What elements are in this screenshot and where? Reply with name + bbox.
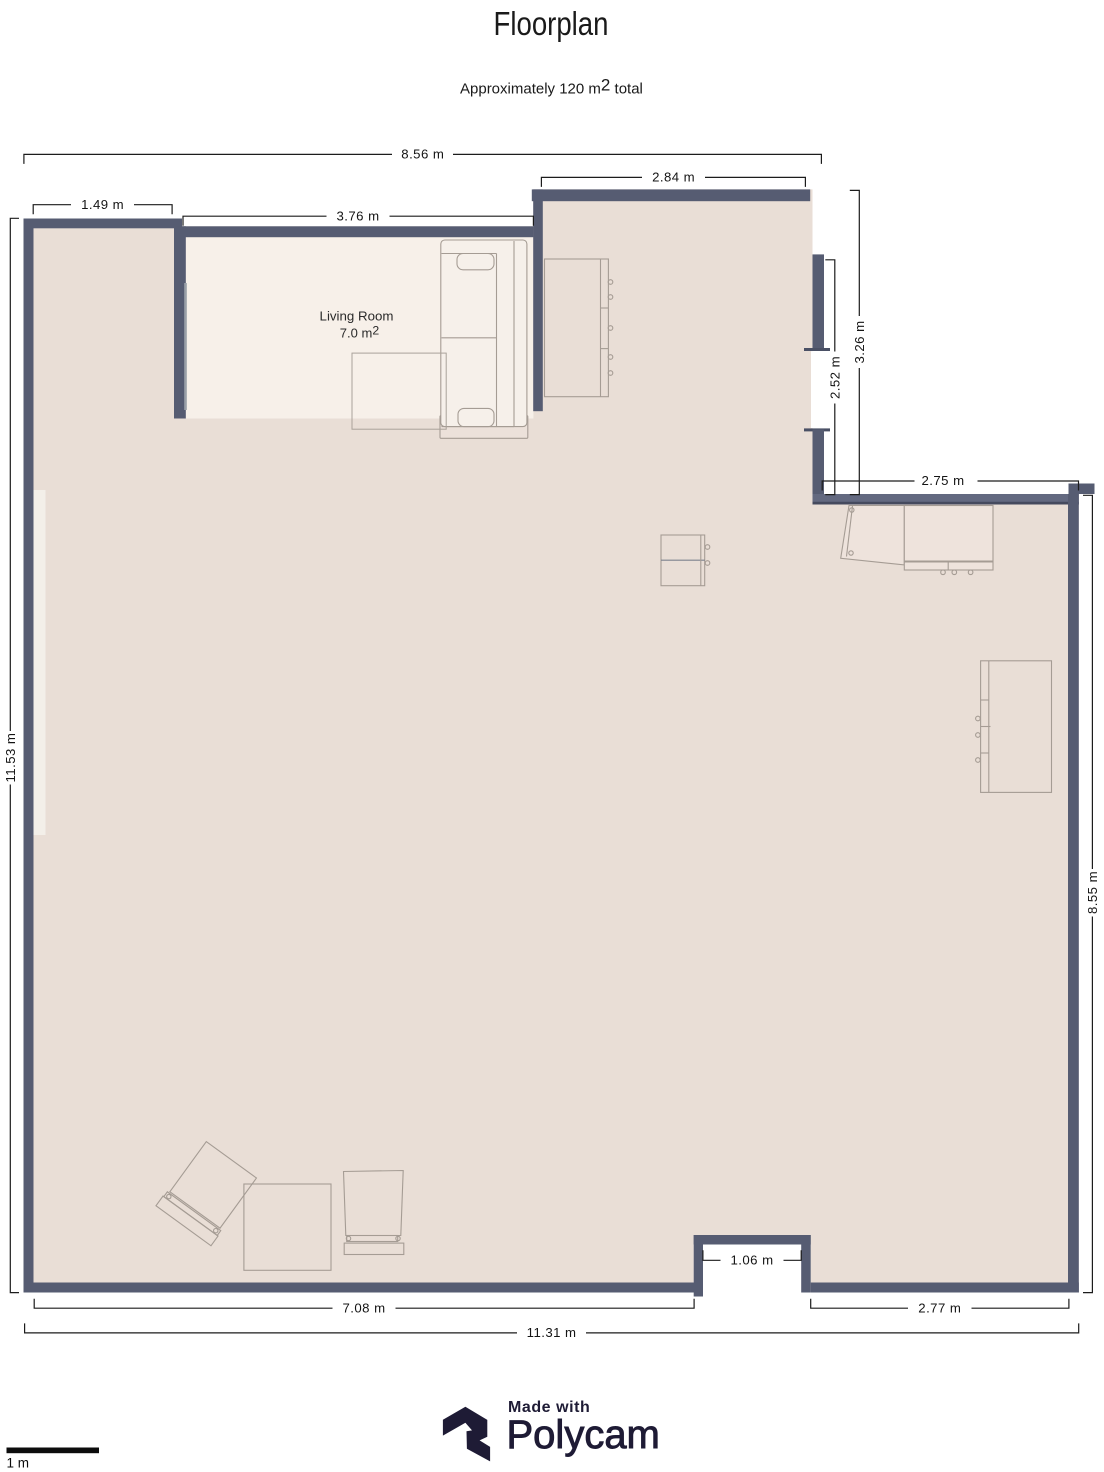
svg-text:2.84 m: 2.84 m	[652, 170, 695, 185]
svg-text:3.76 m: 3.76 m	[336, 208, 379, 223]
svg-text:Living Room: Living Room	[320, 308, 394, 323]
svg-text:11.31 m: 11.31 m	[527, 1325, 577, 1340]
svg-text:3.26 m: 3.26 m	[852, 320, 867, 363]
svg-text:Floorplan: Floorplan	[494, 6, 609, 43]
svg-text:8.55 m: 8.55 m	[1085, 871, 1100, 914]
svg-text:2.75 m: 2.75 m	[921, 473, 964, 488]
svg-text:11.53 m: 11.53 m	[3, 733, 18, 783]
svg-text:1 m: 1 m	[7, 1456, 30, 1471]
svg-text:1.06 m: 1.06 m	[730, 1253, 773, 1268]
svg-text:1.49 m: 1.49 m	[81, 197, 124, 212]
svg-text:7.08 m: 7.08 m	[342, 1300, 385, 1315]
svg-text:Polycam: Polycam	[507, 1413, 660, 1457]
svg-text:8.56 m: 8.56 m	[401, 147, 444, 162]
svg-text:2.52 m: 2.52 m	[828, 356, 843, 399]
svg-text:2.77 m: 2.77 m	[918, 1300, 961, 1315]
